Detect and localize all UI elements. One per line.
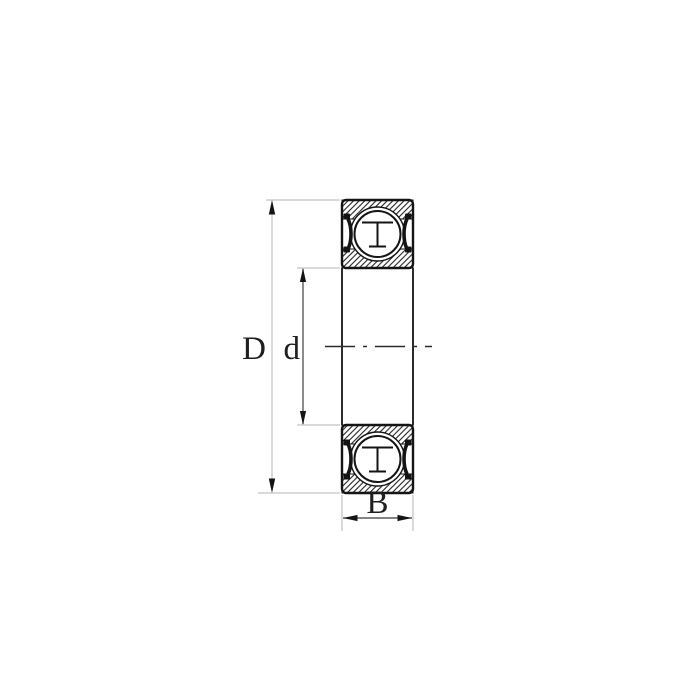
dimension-B-arrow-right-icon — [398, 515, 413, 521]
dimension-d-label: d — [284, 331, 301, 367]
top-bearing-section — [342, 200, 413, 268]
bottom-right-seal — [404, 440, 412, 480]
dimension-d-arrow-up-icon — [300, 268, 306, 282]
dimension-d-arrow-down-icon — [300, 411, 306, 425]
dimension-D-arrow-down-icon — [269, 479, 275, 494]
top-left-seal — [344, 214, 352, 253]
dimension-B-label: B — [366, 485, 388, 521]
top-right-seal — [404, 214, 412, 253]
dimension-D-arrow-up-icon — [269, 200, 275, 215]
bottom-left-seal — [344, 440, 352, 480]
bottom-bearing-section — [342, 425, 413, 493]
dimension-D-label: D — [242, 331, 266, 367]
bearing-drawing-canvas: D d B — [0, 0, 700, 700]
dimension-B-arrow-left-icon — [343, 515, 358, 521]
bearing-cross-section-diagram: D d B — [0, 0, 700, 700]
